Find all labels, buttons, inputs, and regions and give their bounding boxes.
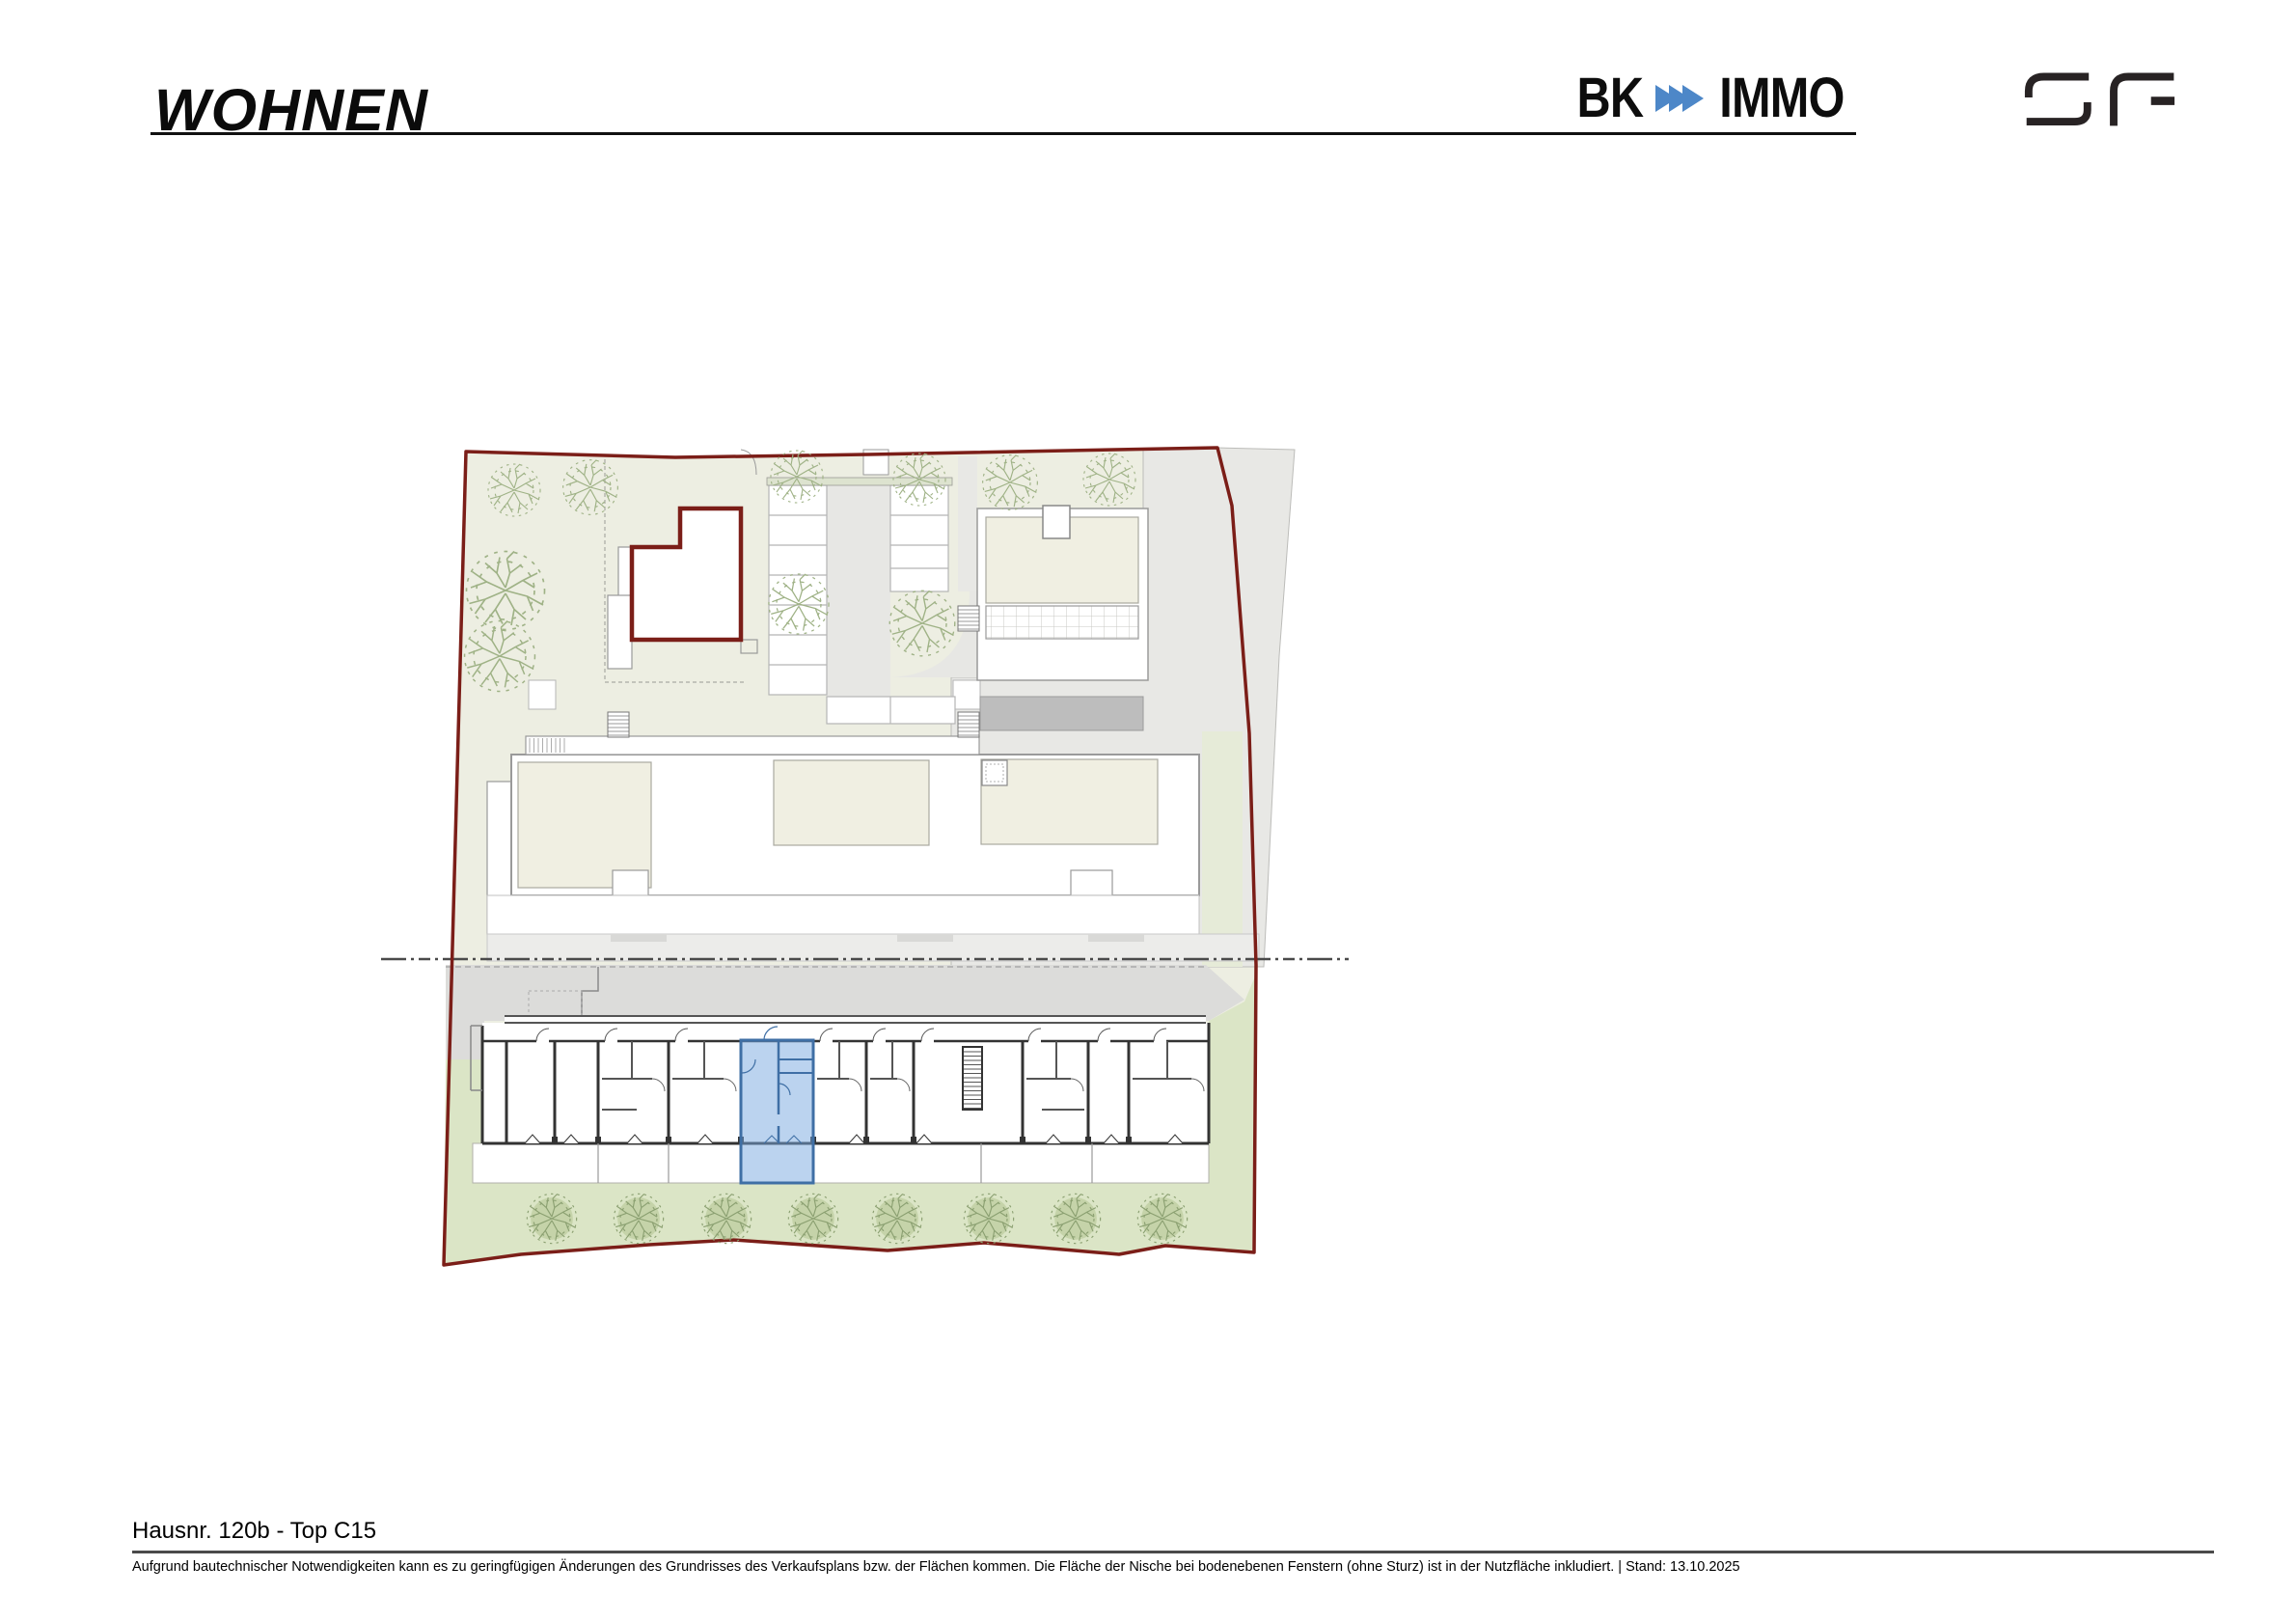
triple-arrow-icon <box>1655 85 1706 112</box>
bk-immo-logo-right-text: IMMO <box>1719 70 1844 126</box>
green-sliver-right <box>1202 731 1243 967</box>
building-northeast <box>977 506 1148 680</box>
stairs-icon <box>958 606 979 631</box>
shed-left <box>529 680 556 709</box>
stairwell <box>963 1047 982 1110</box>
disclaimer-text: Aufgrund bautechnischer Notwendigkeiten … <box>132 1559 1740 1575</box>
footer-rule <box>132 1551 2214 1553</box>
header-rule <box>150 132 1856 135</box>
building-south-floorplan <box>471 1016 1209 1183</box>
building-middle <box>487 736 1259 961</box>
carport-roof <box>980 697 1143 730</box>
sf-monogram-icon <box>2003 56 2215 139</box>
shed-right <box>953 680 980 709</box>
unit-title: Hausnr. 120b - Top C15 <box>132 1518 376 1546</box>
page: { "header": { "section_title": "WOHNEN" … <box>0 0 2296 1621</box>
site-plan <box>367 415 1389 1293</box>
page-title: WOHNEN <box>154 81 428 140</box>
stairs-icon <box>958 712 979 737</box>
stairs-icon <box>608 712 629 737</box>
highlighted-unit-top-c15 <box>741 1027 813 1183</box>
parking-driveway <box>827 485 890 724</box>
bk-immo-logo-left-text: BK <box>1577 70 1644 126</box>
bk-immo-logo: BK IMMO <box>1571 73 1856 124</box>
